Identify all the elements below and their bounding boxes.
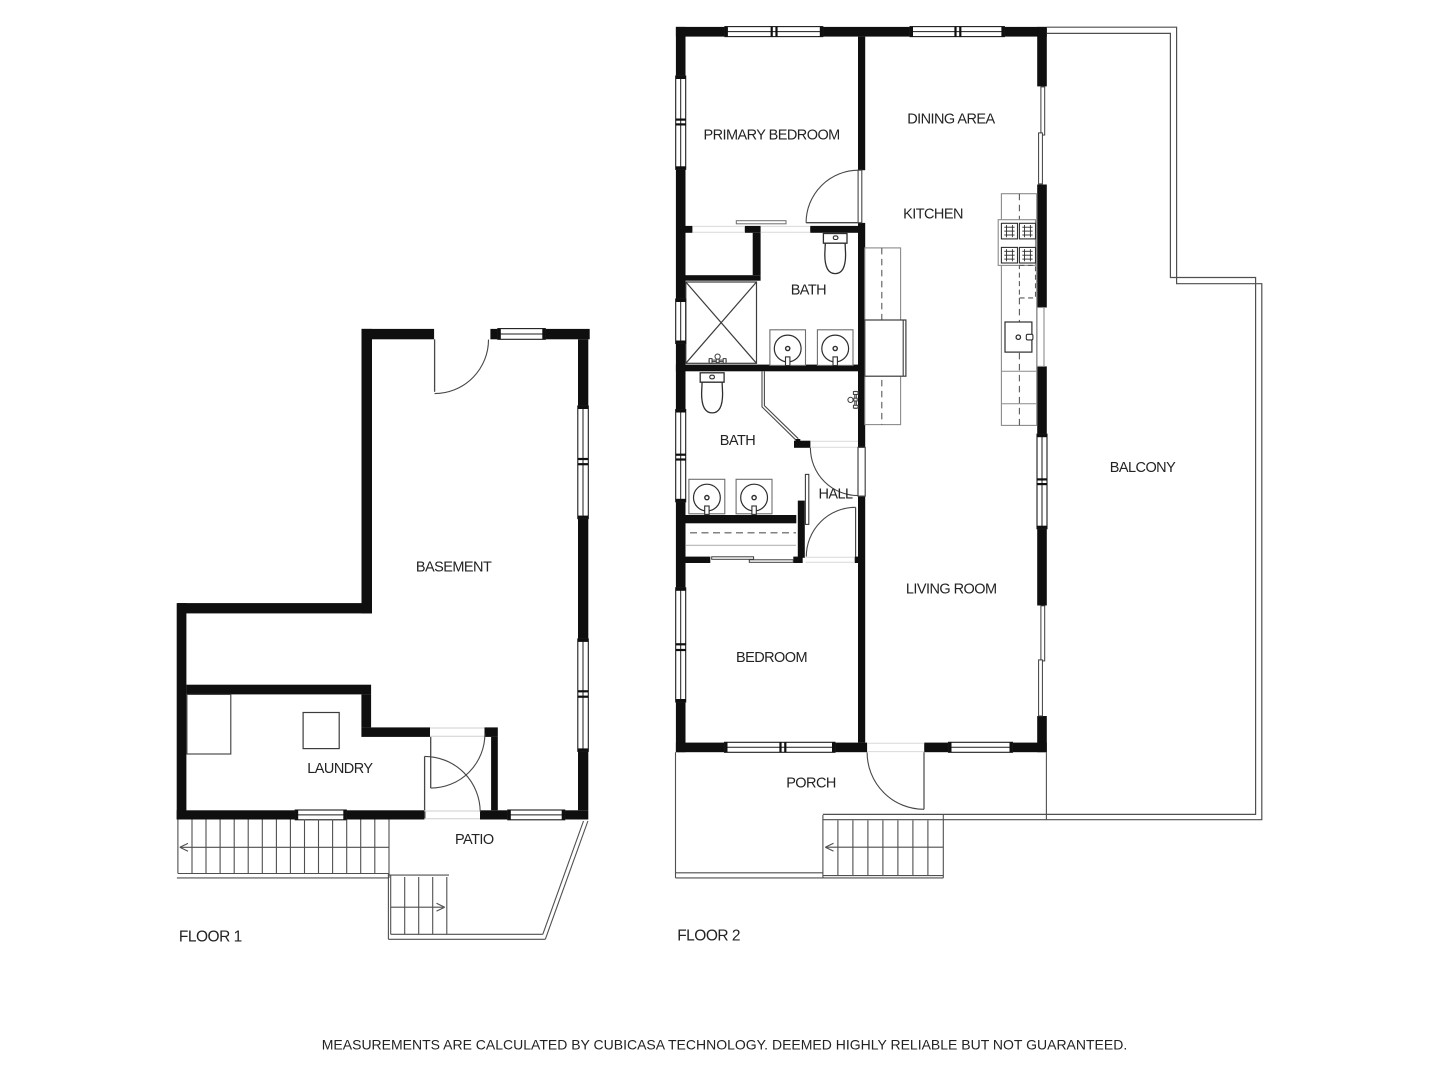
svg-text:BASEMENT: BASEMENT	[416, 560, 492, 576]
svg-text:MEASUREMENTS ARE CALCULATED BY: MEASUREMENTS ARE CALCULATED BY CUBICASA …	[322, 1036, 1127, 1052]
svg-text:BATH: BATH	[791, 282, 826, 298]
svg-text:KITCHEN: KITCHEN	[903, 207, 963, 223]
svg-text:LIVING ROOM: LIVING ROOM	[906, 582, 997, 598]
svg-text:BATH: BATH	[720, 433, 755, 449]
svg-text:FLOOR 2: FLOOR 2	[677, 927, 740, 944]
svg-text:BEDROOM: BEDROOM	[736, 650, 807, 666]
svg-text:PATIO: PATIO	[455, 832, 494, 848]
svg-text:HALL: HALL	[818, 486, 853, 502]
svg-text:FLOOR 1: FLOOR 1	[179, 928, 242, 945]
svg-text:PRIMARY BEDROOM: PRIMARY BEDROOM	[703, 128, 839, 144]
svg-text:LAUNDRY: LAUNDRY	[307, 761, 373, 777]
svg-text:BALCONY: BALCONY	[1110, 460, 1176, 476]
svg-text:DINING AREA: DINING AREA	[907, 111, 995, 127]
svg-text:PORCH: PORCH	[786, 775, 836, 791]
